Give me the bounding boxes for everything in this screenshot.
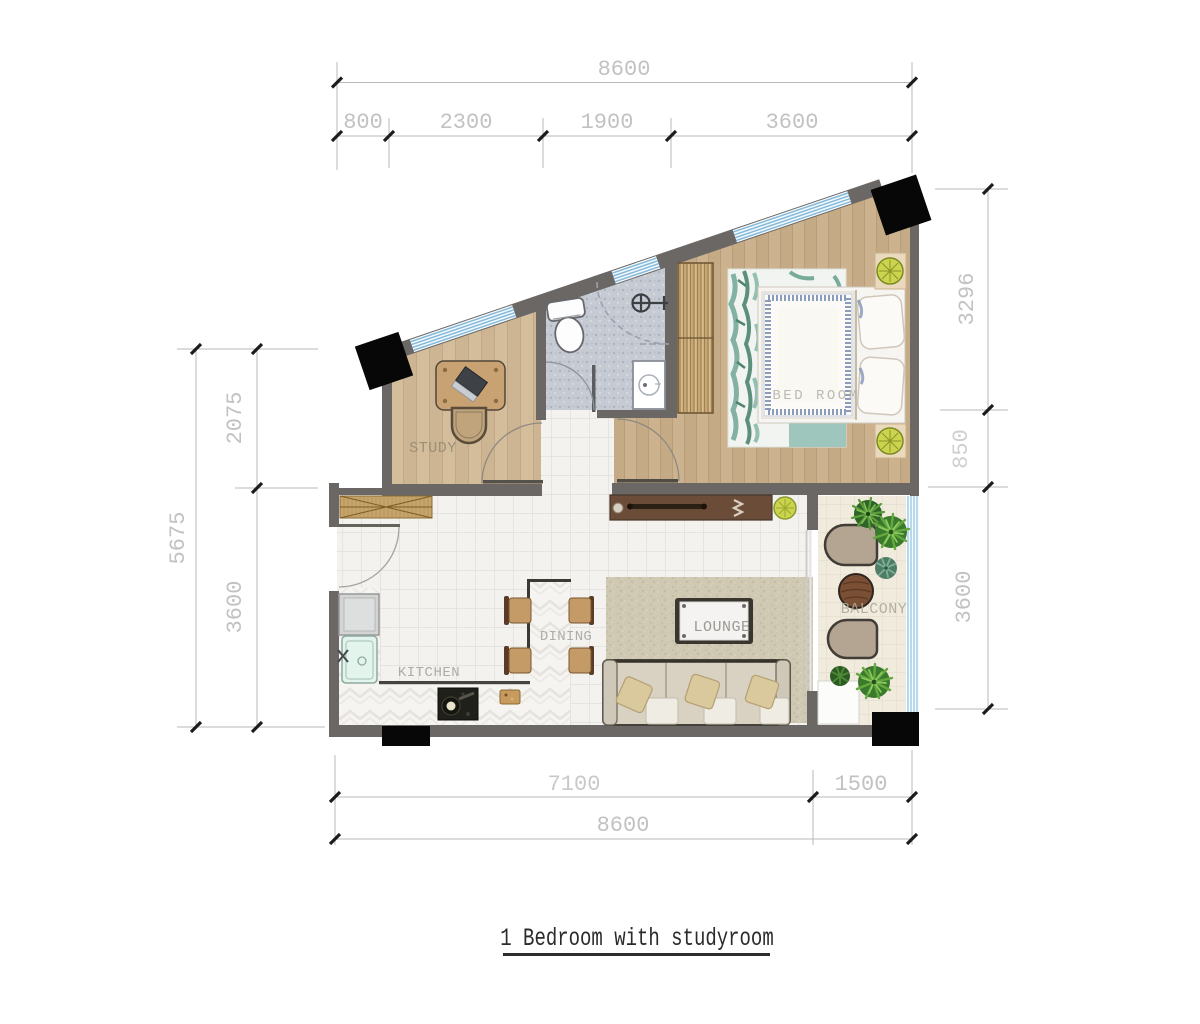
svg-text:3600: 3600 <box>952 571 977 624</box>
svg-text:KITCHEN: KITCHEN <box>398 665 460 681</box>
svg-text:LOUNGE: LOUNGE <box>693 619 750 636</box>
svg-text:2300: 2300 <box>440 110 493 135</box>
svg-text:7100: 7100 <box>548 772 601 797</box>
svg-text:850: 850 <box>949 429 974 469</box>
svg-text:8600: 8600 <box>597 813 650 838</box>
svg-text:5675: 5675 <box>166 512 191 565</box>
svg-text:STUDY: STUDY <box>409 440 457 457</box>
svg-text:2075: 2075 <box>223 392 248 445</box>
svg-text:DINING: DINING <box>540 629 592 645</box>
svg-text:1 Bedroom with studyroom: 1 Bedroom with studyroom <box>500 925 773 953</box>
svg-text:3296: 3296 <box>955 273 980 326</box>
svg-text:1900: 1900 <box>581 110 634 135</box>
svg-text:BALCONY: BALCONY <box>841 601 908 618</box>
svg-text:8600: 8600 <box>598 57 651 82</box>
svg-text:BED ROOM: BED ROOM <box>772 388 859 404</box>
svg-text:3600: 3600 <box>223 581 248 634</box>
svg-text:1500: 1500 <box>835 772 888 797</box>
svg-text:3600: 3600 <box>766 110 819 135</box>
svg-text:800: 800 <box>343 110 383 135</box>
